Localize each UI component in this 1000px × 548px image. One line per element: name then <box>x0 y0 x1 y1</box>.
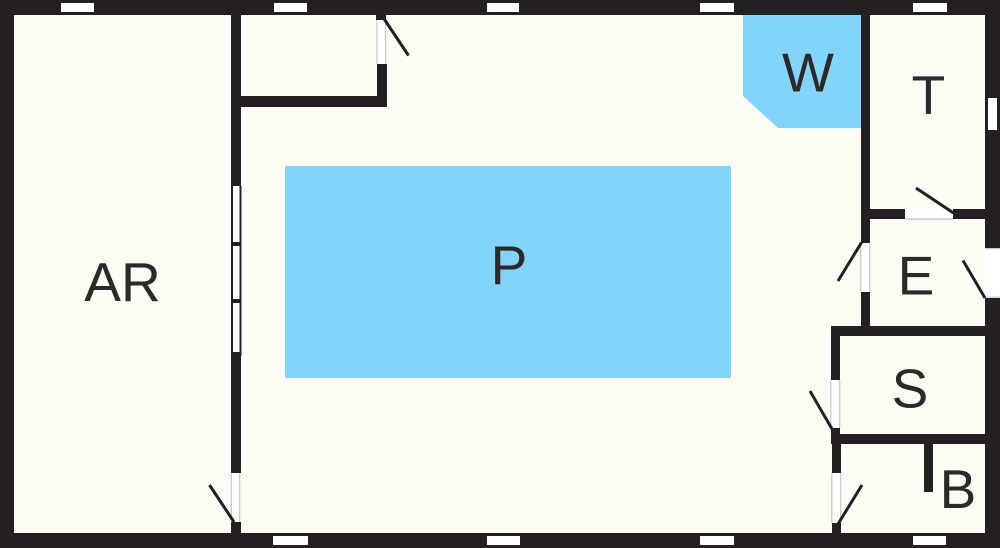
svg-text:T: T <box>912 64 946 126</box>
svg-text:P: P <box>491 234 528 296</box>
svg-text:E: E <box>898 245 935 307</box>
svg-text:B: B <box>940 458 977 520</box>
svg-text:S: S <box>892 358 929 420</box>
svg-text:AR: AR <box>84 251 160 313</box>
svg-text:W: W <box>782 42 834 104</box>
